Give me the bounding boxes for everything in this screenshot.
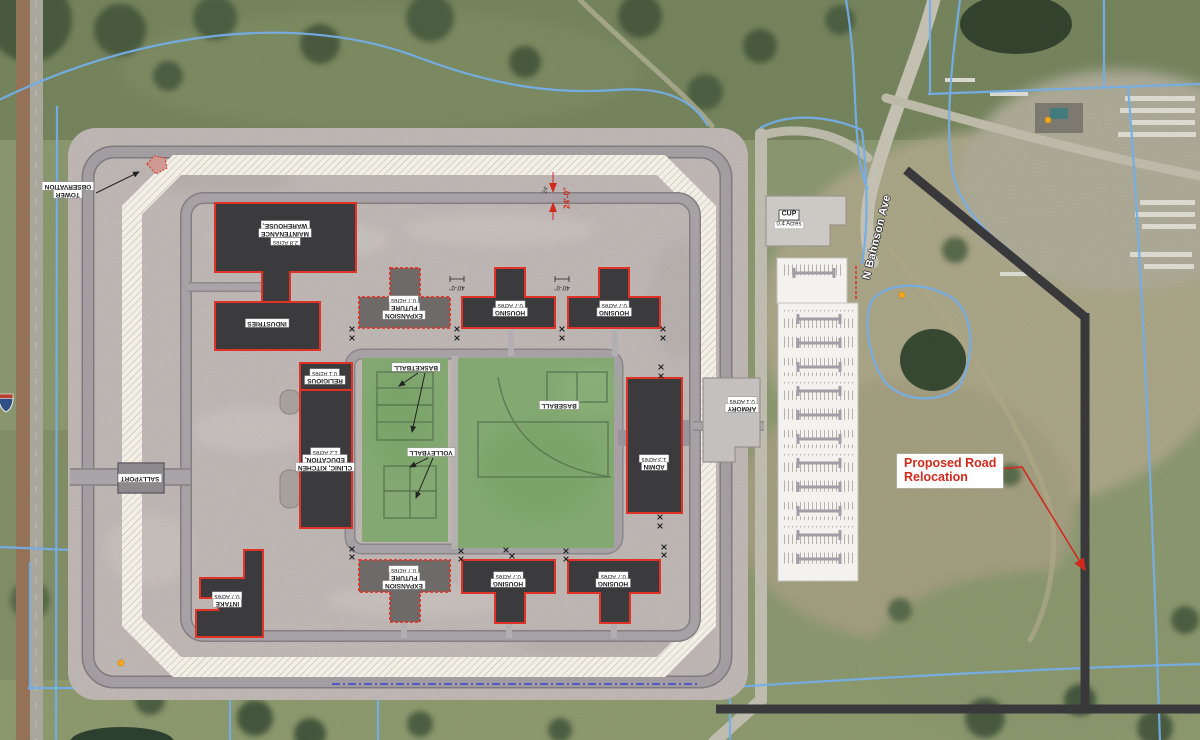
canopy xyxy=(280,390,300,414)
building-education xyxy=(300,390,352,528)
site-plan-map: OBSERVATION TOWER WAREHOUSE, MAINTENANCE… xyxy=(0,0,1200,740)
recreation-fields xyxy=(362,358,620,548)
parking-rows xyxy=(782,310,854,568)
building-religious xyxy=(300,363,352,390)
parking-lot xyxy=(777,258,858,581)
canopy xyxy=(280,470,300,508)
map-canvas xyxy=(0,0,1200,740)
building-industries xyxy=(215,302,320,350)
admin-walk xyxy=(618,430,627,446)
admin-walk xyxy=(682,420,689,446)
building-admin xyxy=(627,378,682,513)
building-sallyport xyxy=(118,463,164,493)
